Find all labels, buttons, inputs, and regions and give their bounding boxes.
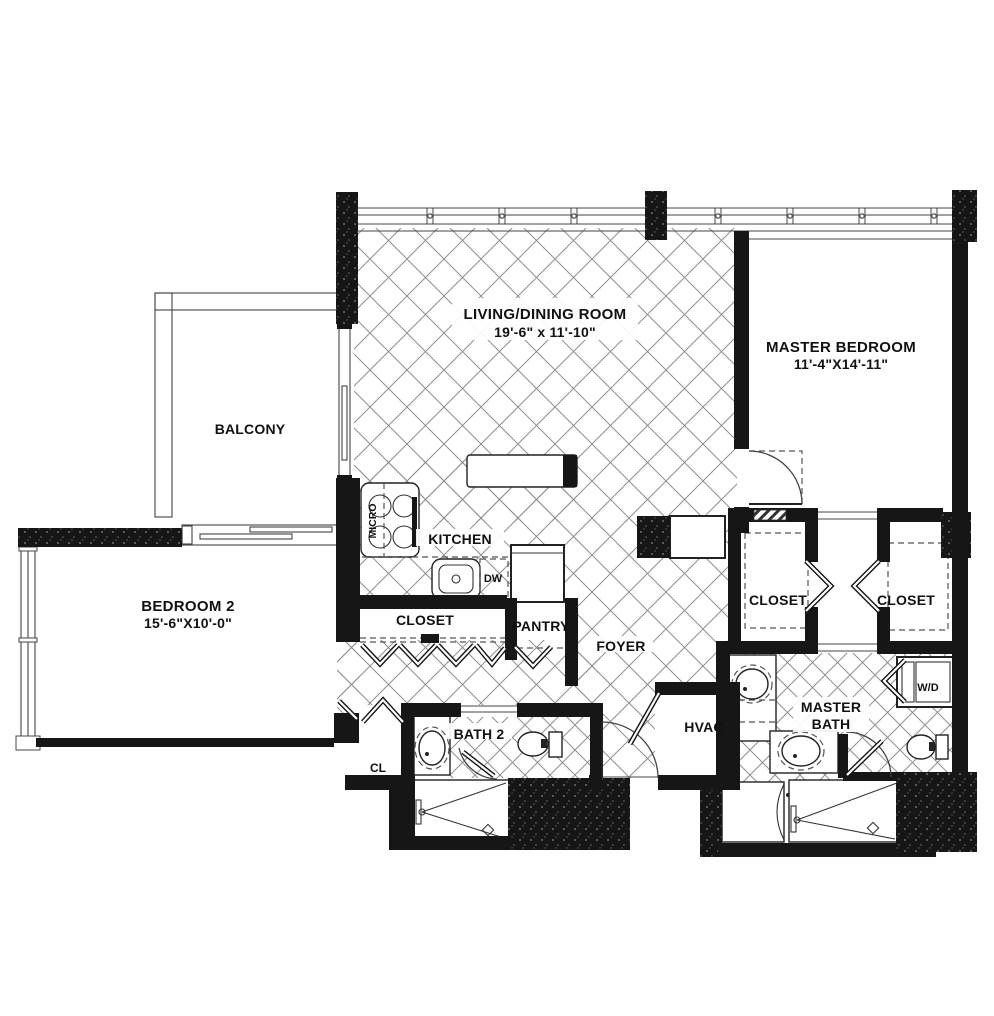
kitchen-island-cap [563,455,577,487]
master-bath-label-1: MASTER [801,699,861,715]
closet1-door [806,561,831,611]
closet1-left-wall [728,508,741,654]
hvac-right-wall [727,682,740,782]
master-door-arc [749,451,802,504]
master-divider-wall [734,231,749,449]
master-toilet-hinge [929,742,935,751]
master-sink-2 [782,736,820,766]
pantry-label: PANTRY [512,618,570,634]
bath2-top-wall-right [517,703,593,717]
hall-closet-label: CLOSET [396,612,454,628]
microwave-label: MICRO [367,504,379,539]
master-sink-1 [736,669,768,699]
closet1-right-upper [805,522,818,562]
sink-drain [793,754,797,758]
sink-drain [425,752,429,756]
column-top-middle [645,191,667,240]
column-top-right [952,190,977,242]
masterbath-mid-stub [838,734,848,778]
closet2-door [854,561,879,611]
kitchen-left-wall [336,478,360,642]
balcony-label: BALCONY [215,421,286,437]
bath2-sink [419,731,445,765]
bath2-bottom-band [400,836,510,850]
bath2-toilet-hinge [541,739,547,748]
balcony-rail-top [155,293,337,310]
master-bedroom-label: MASTER BEDROOM [766,339,916,356]
closet1-door-inner [806,561,831,611]
kitchen-island [467,455,577,487]
bedroom2-bottom-wall [36,738,334,747]
foyer-bottom-wall-left [589,775,602,790]
pantry-right-wall [565,598,578,686]
bedroom2-window [21,549,35,737]
master-shower [722,782,784,842]
closet2-left-upper [877,522,890,562]
master-bottom-wall-right [877,508,943,522]
washer-dryer-label: W/D [917,682,938,694]
masterbath-right-wall [952,654,968,780]
bottom-mass-center [508,778,630,850]
foyer-bottom-wall-right [658,775,740,790]
cl-bottom-wall [345,775,415,790]
master-closet-right-label: CLOSET [877,592,935,608]
hvac-label: HVAC [684,719,723,735]
balcony-slider-cap [182,526,192,544]
living-dining-label: LIVING/DINING ROOM [464,306,627,323]
balcony-slider-band [182,525,337,545]
master-right-wall [952,242,968,654]
foyer-label: FOYER [596,638,645,654]
counter-bottom-wall [358,595,507,609]
balcony-slider-panel-1 [200,534,292,539]
bedroom2-top-wall [18,528,182,547]
floor-plan-svg: LIVING/DINING ROOM 19'-6" x 11'-10" MAST… [0,0,994,1016]
living-dining-dimensions: 19'-6" x 11'-10" [494,324,596,340]
master-closet-right-shelf [888,543,948,630]
door-cap-top [337,324,352,329]
bottom-mass-right [896,772,977,852]
master-door-dash [749,451,802,504]
column-top-left [336,192,358,324]
master-bath-label-2: BATH [812,716,851,732]
masterbath-top-wall-left [728,641,818,654]
sink-drain [743,687,747,691]
bedroom2-window-tick [19,547,37,551]
closet2-door-inner [854,561,879,611]
bedroom2-dimensions: 15'-6"X10'-0" [144,615,232,631]
balcony-rail-left [155,293,172,517]
master-bedroom-dimensions: 11'-4"X14'-11" [794,356,888,372]
bedroom2-window-tick [19,638,37,642]
foyer-column [637,516,670,558]
master-tub [789,780,900,842]
balcony-slider-panel-2 [250,527,332,532]
floor-plan-page: LIVING/DINING ROOM 19'-6" x 11'-10" MAST… [0,0,994,1016]
shaft-box [670,516,725,558]
bath2-left-wall [401,703,414,779]
living-balcony-door [339,327,350,478]
closet-track-block [421,634,439,643]
master-closet-left-label: CLOSET [749,592,807,608]
kitchen-label: KITCHEN [428,531,492,547]
dishwasher-label: DW [484,573,503,585]
bedroom2-label: BEDROOM 2 [141,598,235,615]
master-closet-left-shelf [745,533,808,628]
cl-label: CL [370,761,386,775]
bath2-label: BATH 2 [454,726,505,742]
living-balcony-door-panel [342,386,347,460]
hatched-wall-segment [754,510,786,520]
bath2-toilet-tank [549,732,562,757]
window-mullions [427,208,937,224]
master-toilet-tank [936,735,948,759]
